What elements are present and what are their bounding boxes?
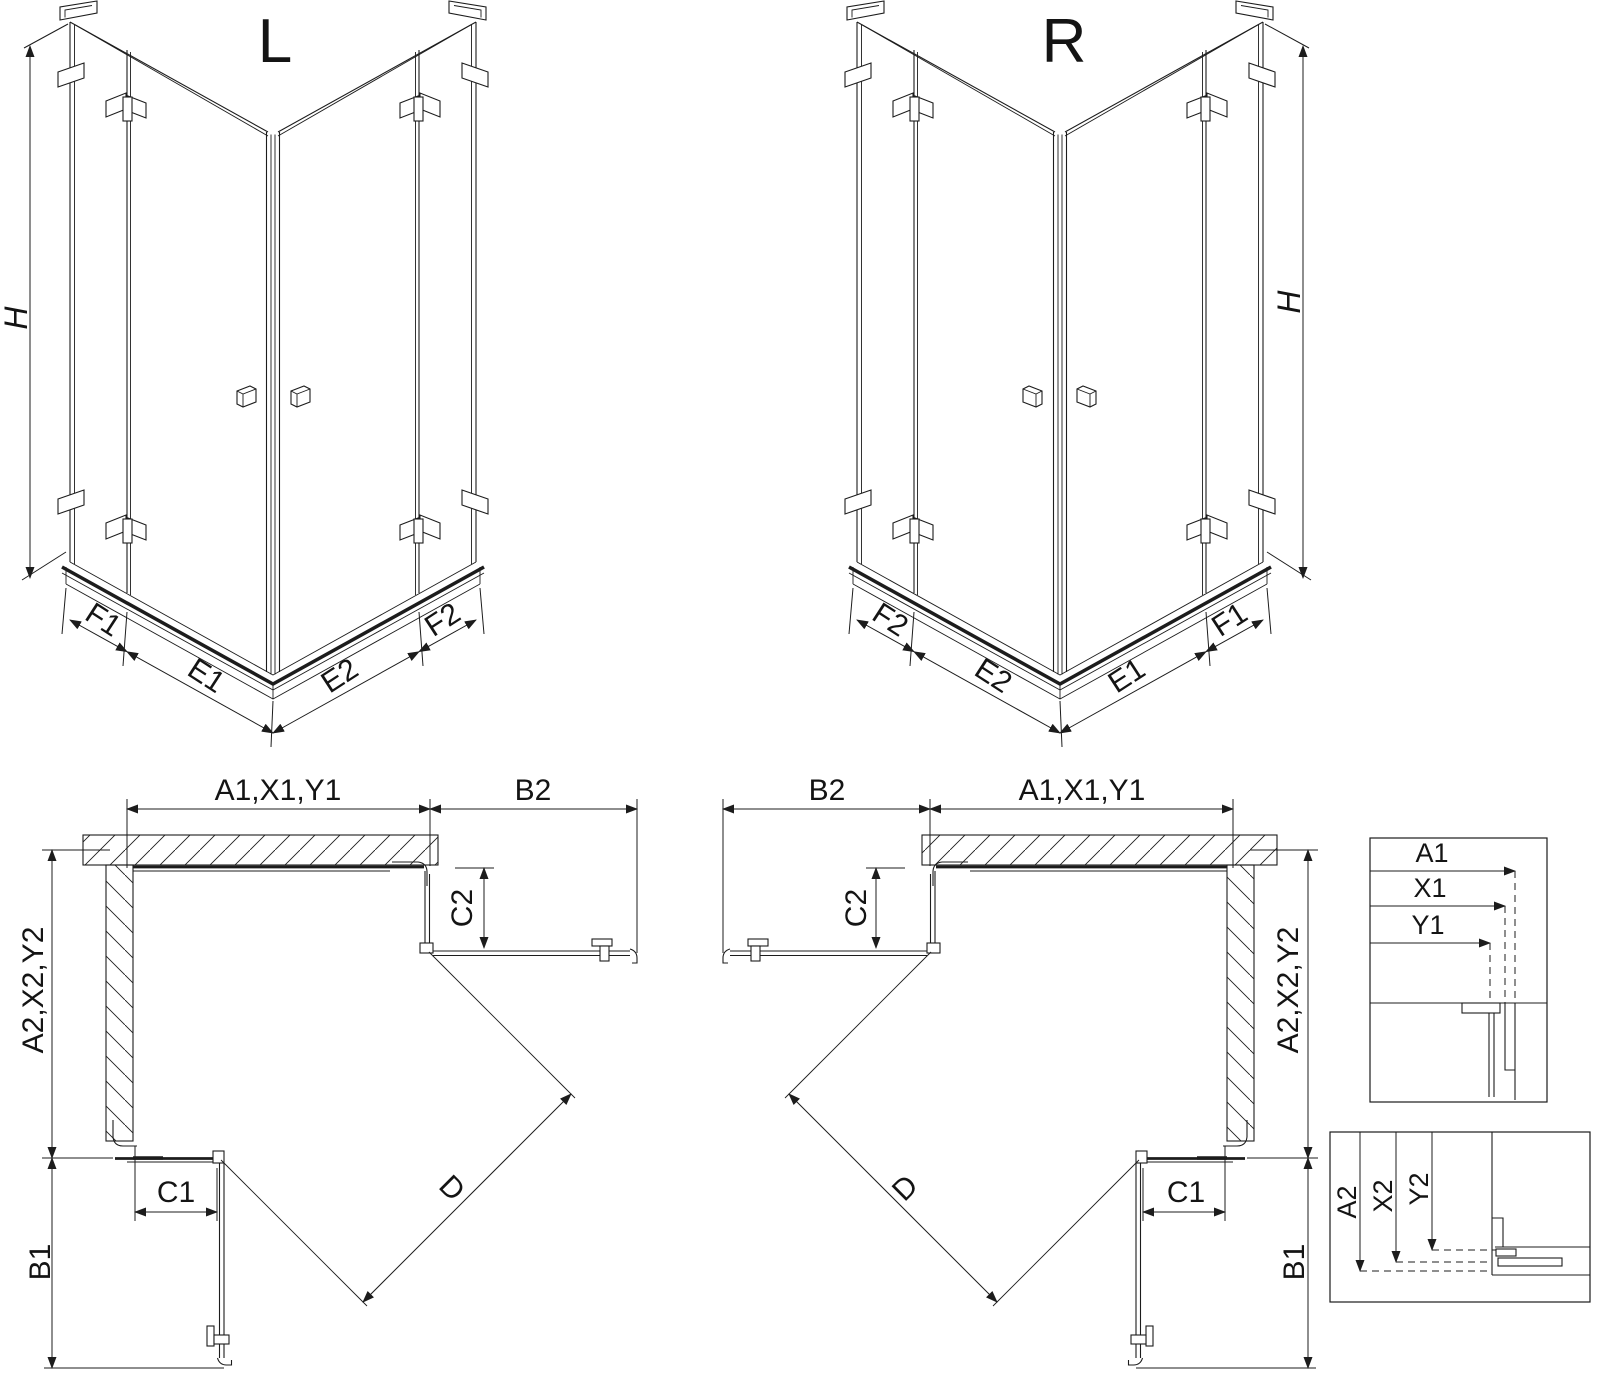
label-diagonal: D (886, 1169, 925, 1208)
label-door-top: B2 (515, 774, 552, 807)
plan-view-right: B2 A1,X1,Y1 C2 A2,X2,Y2 C1 B1 D (723, 774, 1318, 1368)
label-diagonal: D (432, 1169, 471, 1208)
label-segment-e2: E2 (969, 652, 1018, 700)
label-segment-f1: F1 (80, 597, 127, 644)
label-fixed-top: C2 (840, 889, 873, 927)
label-detail-y2: Y2 (1404, 1172, 1434, 1205)
label-width-top: A1,X1,Y1 (215, 774, 342, 807)
label-segment-e2: E2 (315, 652, 364, 700)
label-fixed-top: C2 (446, 889, 479, 927)
iso-view-right: R H F2 E2 E1 F1 (845, 1, 1311, 747)
wall-hatch-top (83, 835, 438, 865)
wall-hatch-side (106, 865, 133, 1141)
label-detail-x2: X2 (1368, 1179, 1398, 1212)
label-width-top: A1,X1,Y1 (1019, 774, 1146, 807)
label-segment-e1: E1 (1102, 652, 1151, 700)
label-depth-side: A2,X2,Y2 (1272, 927, 1305, 1054)
label-height: H (0, 306, 34, 330)
label-detail-x1: X1 (1413, 873, 1446, 903)
detail-box-width-refs: A1 X1 Y1 (1370, 838, 1547, 1102)
view-title-right: R (1042, 7, 1087, 76)
shower-enclosure-drawing: L H F1 E1 E2 F2 R H F2 E2 E1 F1 A1,X1,Y1… (0, 0, 1600, 1373)
label-door-bottom: B1 (24, 1244, 57, 1281)
plan-view-left: A1,X1,Y1 B2 C2 A2,X2,Y2 C1 B1 D (17, 774, 637, 1368)
wall-hatch-side (1227, 865, 1254, 1141)
label-door-top: B2 (809, 774, 846, 807)
label-depth-side: A2,X2,Y2 (17, 927, 50, 1054)
view-title-left: L (258, 7, 292, 76)
label-height: H (1271, 290, 1307, 314)
label-fixed-bottom: C1 (157, 1176, 195, 1209)
iso-view-left: L H F1 E1 E2 F2 (0, 1, 488, 747)
technical-drawing-page: L H F1 E1 E2 F2 R H F2 E2 E1 F1 A1,X1,Y1… (0, 0, 1600, 1373)
detail-box-depth-refs: A2 X2 Y2 (1330, 1132, 1590, 1302)
label-segment-e1: E1 (182, 652, 231, 700)
label-door-bottom: B1 (1278, 1244, 1311, 1281)
wall-hatch-top (922, 835, 1277, 865)
label-segment-f1: F1 (1206, 597, 1253, 644)
label-segment-f2: F2 (419, 597, 466, 644)
label-segment-f2: F2 (867, 597, 914, 644)
label-detail-a2: A2 (1332, 1185, 1362, 1218)
label-detail-y1: Y1 (1411, 910, 1444, 940)
label-fixed-bottom: C1 (1167, 1176, 1205, 1209)
label-detail-a1: A1 (1415, 838, 1448, 868)
